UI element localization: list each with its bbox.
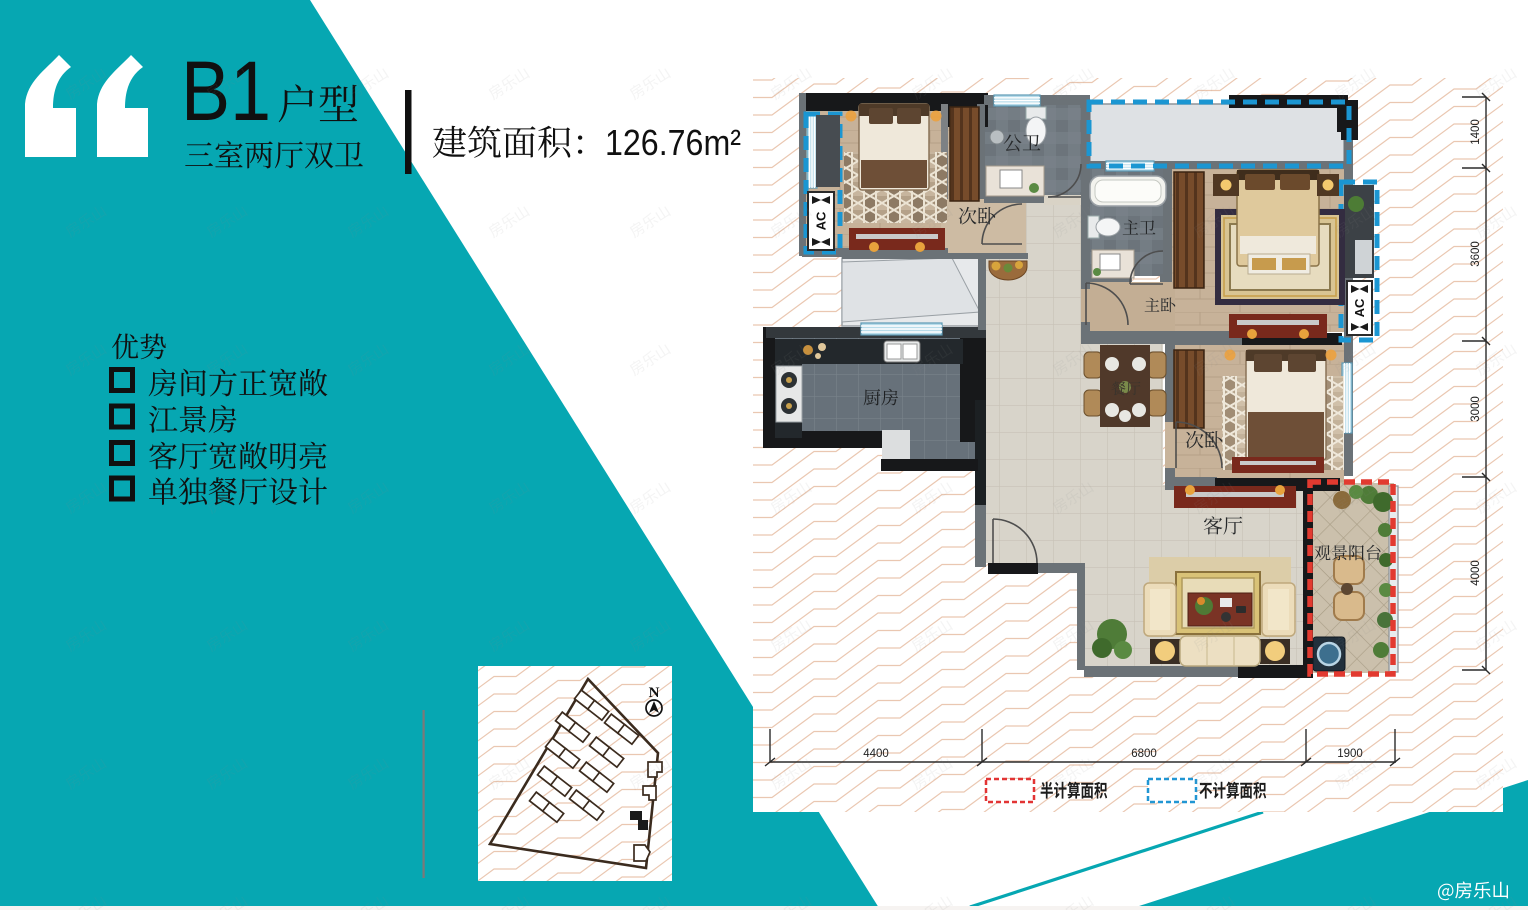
svg-text:3600: 3600 <box>1470 241 1482 267</box>
svg-text:N: N <box>649 685 660 701</box>
svg-text:1400: 1400 <box>1470 119 1482 145</box>
svg-text:126.76m²: 126.76m² <box>605 122 741 163</box>
svg-text:B1: B1 <box>181 44 271 138</box>
svg-text:3000: 3000 <box>1470 396 1482 422</box>
svg-text:AC: AC <box>1352 298 1367 317</box>
svg-text:6800: 6800 <box>1131 748 1157 760</box>
svg-text:1900: 1900 <box>1337 748 1363 760</box>
svg-text:4400: 4400 <box>863 748 889 760</box>
svg-text:AC: AC <box>814 211 829 230</box>
svg-text:4000: 4000 <box>1470 560 1482 586</box>
